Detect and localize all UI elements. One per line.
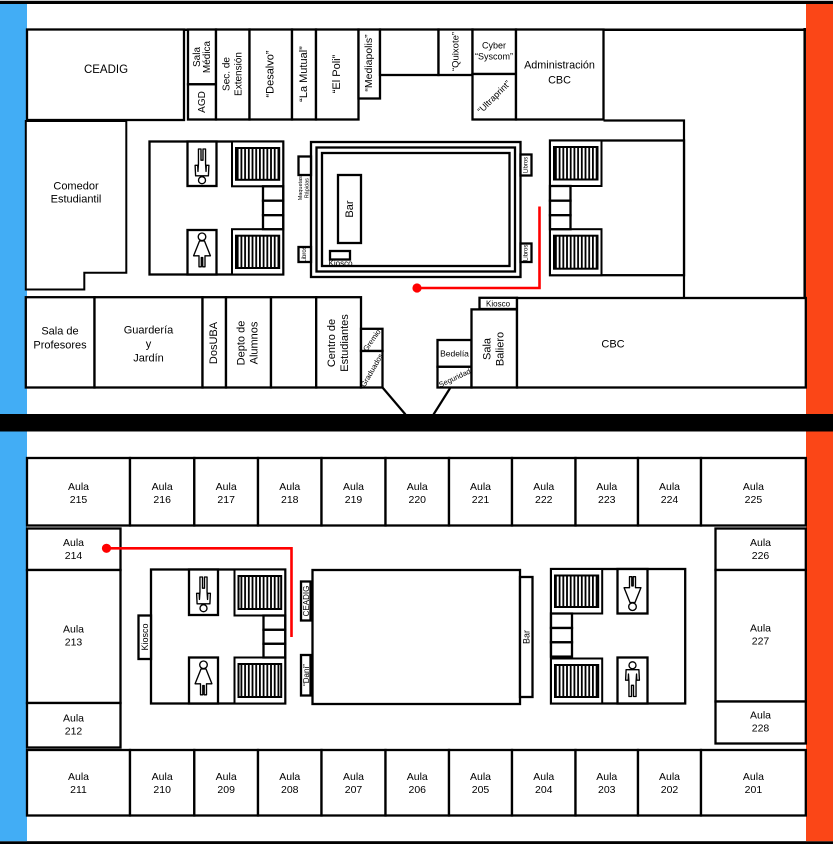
svg-text:“Mediapolis”: “Mediapolis”: [363, 34, 375, 92]
svg-text:Aula223: Aula223: [596, 481, 617, 506]
svg-text:Aula204: Aula204: [533, 771, 554, 796]
svg-text:Aula210: Aula210: [152, 771, 173, 796]
svg-text:Bar: Bar: [344, 200, 356, 217]
svg-text:Kiosco: Kiosco: [140, 623, 150, 650]
svg-text:Aula220: Aula220: [407, 481, 428, 506]
svg-text:Aula218: Aula218: [279, 481, 300, 506]
svg-text:Aula214: Aula214: [63, 537, 84, 562]
svg-text:Libros: Libros: [302, 246, 308, 262]
svg-text:Aula205: Aula205: [470, 771, 491, 796]
svg-text:MaquetasRápidas: MaquetasRápidas: [298, 176, 310, 200]
svg-text:Aula216: Aula216: [152, 481, 173, 506]
svg-text:Depto deAlumnos: Depto deAlumnos: [236, 321, 261, 366]
svg-text:“Desalvo”: “Desalvo”: [265, 50, 277, 97]
svg-text:Kiosco: Kiosco: [328, 259, 353, 268]
svg-text:Aula227: Aula227: [750, 623, 771, 648]
svg-text:Aula225: Aula225: [743, 481, 764, 506]
svg-text:Aula211: Aula211: [68, 771, 89, 796]
svg-text:Bar: Bar: [521, 630, 531, 644]
svg-text:Aula221: Aula221: [470, 481, 491, 506]
svg-text:Aula209: Aula209: [216, 771, 237, 796]
svg-text:CEADIG: CEADIG: [301, 586, 310, 617]
svg-text:Aula207: Aula207: [343, 771, 364, 796]
svg-text:“La Mutual”: “La Mutual”: [298, 46, 310, 102]
svg-text:ComedorEstudiantil: ComedorEstudiantil: [51, 181, 102, 206]
svg-text:Kiosco: Kiosco: [486, 299, 511, 308]
svg-text:Aula215: Aula215: [68, 481, 89, 506]
svg-text:Libros: Libros: [523, 245, 529, 261]
svg-text:Aula201: Aula201: [743, 771, 764, 796]
svg-text:Aula203: Aula203: [596, 771, 617, 796]
svg-text:Aula206: Aula206: [407, 771, 428, 796]
svg-text:Libros: Libros: [523, 157, 529, 173]
svg-text:AGD: AGD: [197, 91, 208, 113]
svg-text:“Quixote”: “Quixote”: [450, 32, 461, 71]
svg-text:Bedelía: Bedelía: [440, 349, 469, 359]
svg-text:Aula228: Aula228: [750, 710, 771, 735]
svg-text:CBC: CBC: [601, 339, 624, 351]
svg-text:Aula202: Aula202: [659, 771, 680, 796]
svg-text:CEADIG: CEADIG: [84, 64, 128, 76]
svg-text:Aula208: Aula208: [279, 771, 300, 796]
svg-text:Aula226: Aula226: [750, 537, 771, 562]
svg-text:Aula224: Aula224: [659, 481, 680, 506]
svg-text:Sec. deExtensión: Sec. deExtensión: [221, 52, 244, 96]
svg-text:Centro deEstudiantes: Centro deEstudiantes: [326, 314, 351, 372]
svg-text:“El Poli”: “El Poli”: [331, 54, 343, 93]
svg-text:Aula219: Aula219: [343, 481, 364, 506]
svg-text:Aula217: Aula217: [216, 481, 237, 506]
svg-text:DosUBA: DosUBA: [208, 321, 220, 364]
svg-text:Aula212: Aula212: [63, 713, 84, 738]
svg-text:“Dani”: “Dani”: [301, 664, 310, 686]
svg-text:Aula222: Aula222: [533, 481, 554, 506]
svg-text:Aula213: Aula213: [63, 624, 84, 649]
